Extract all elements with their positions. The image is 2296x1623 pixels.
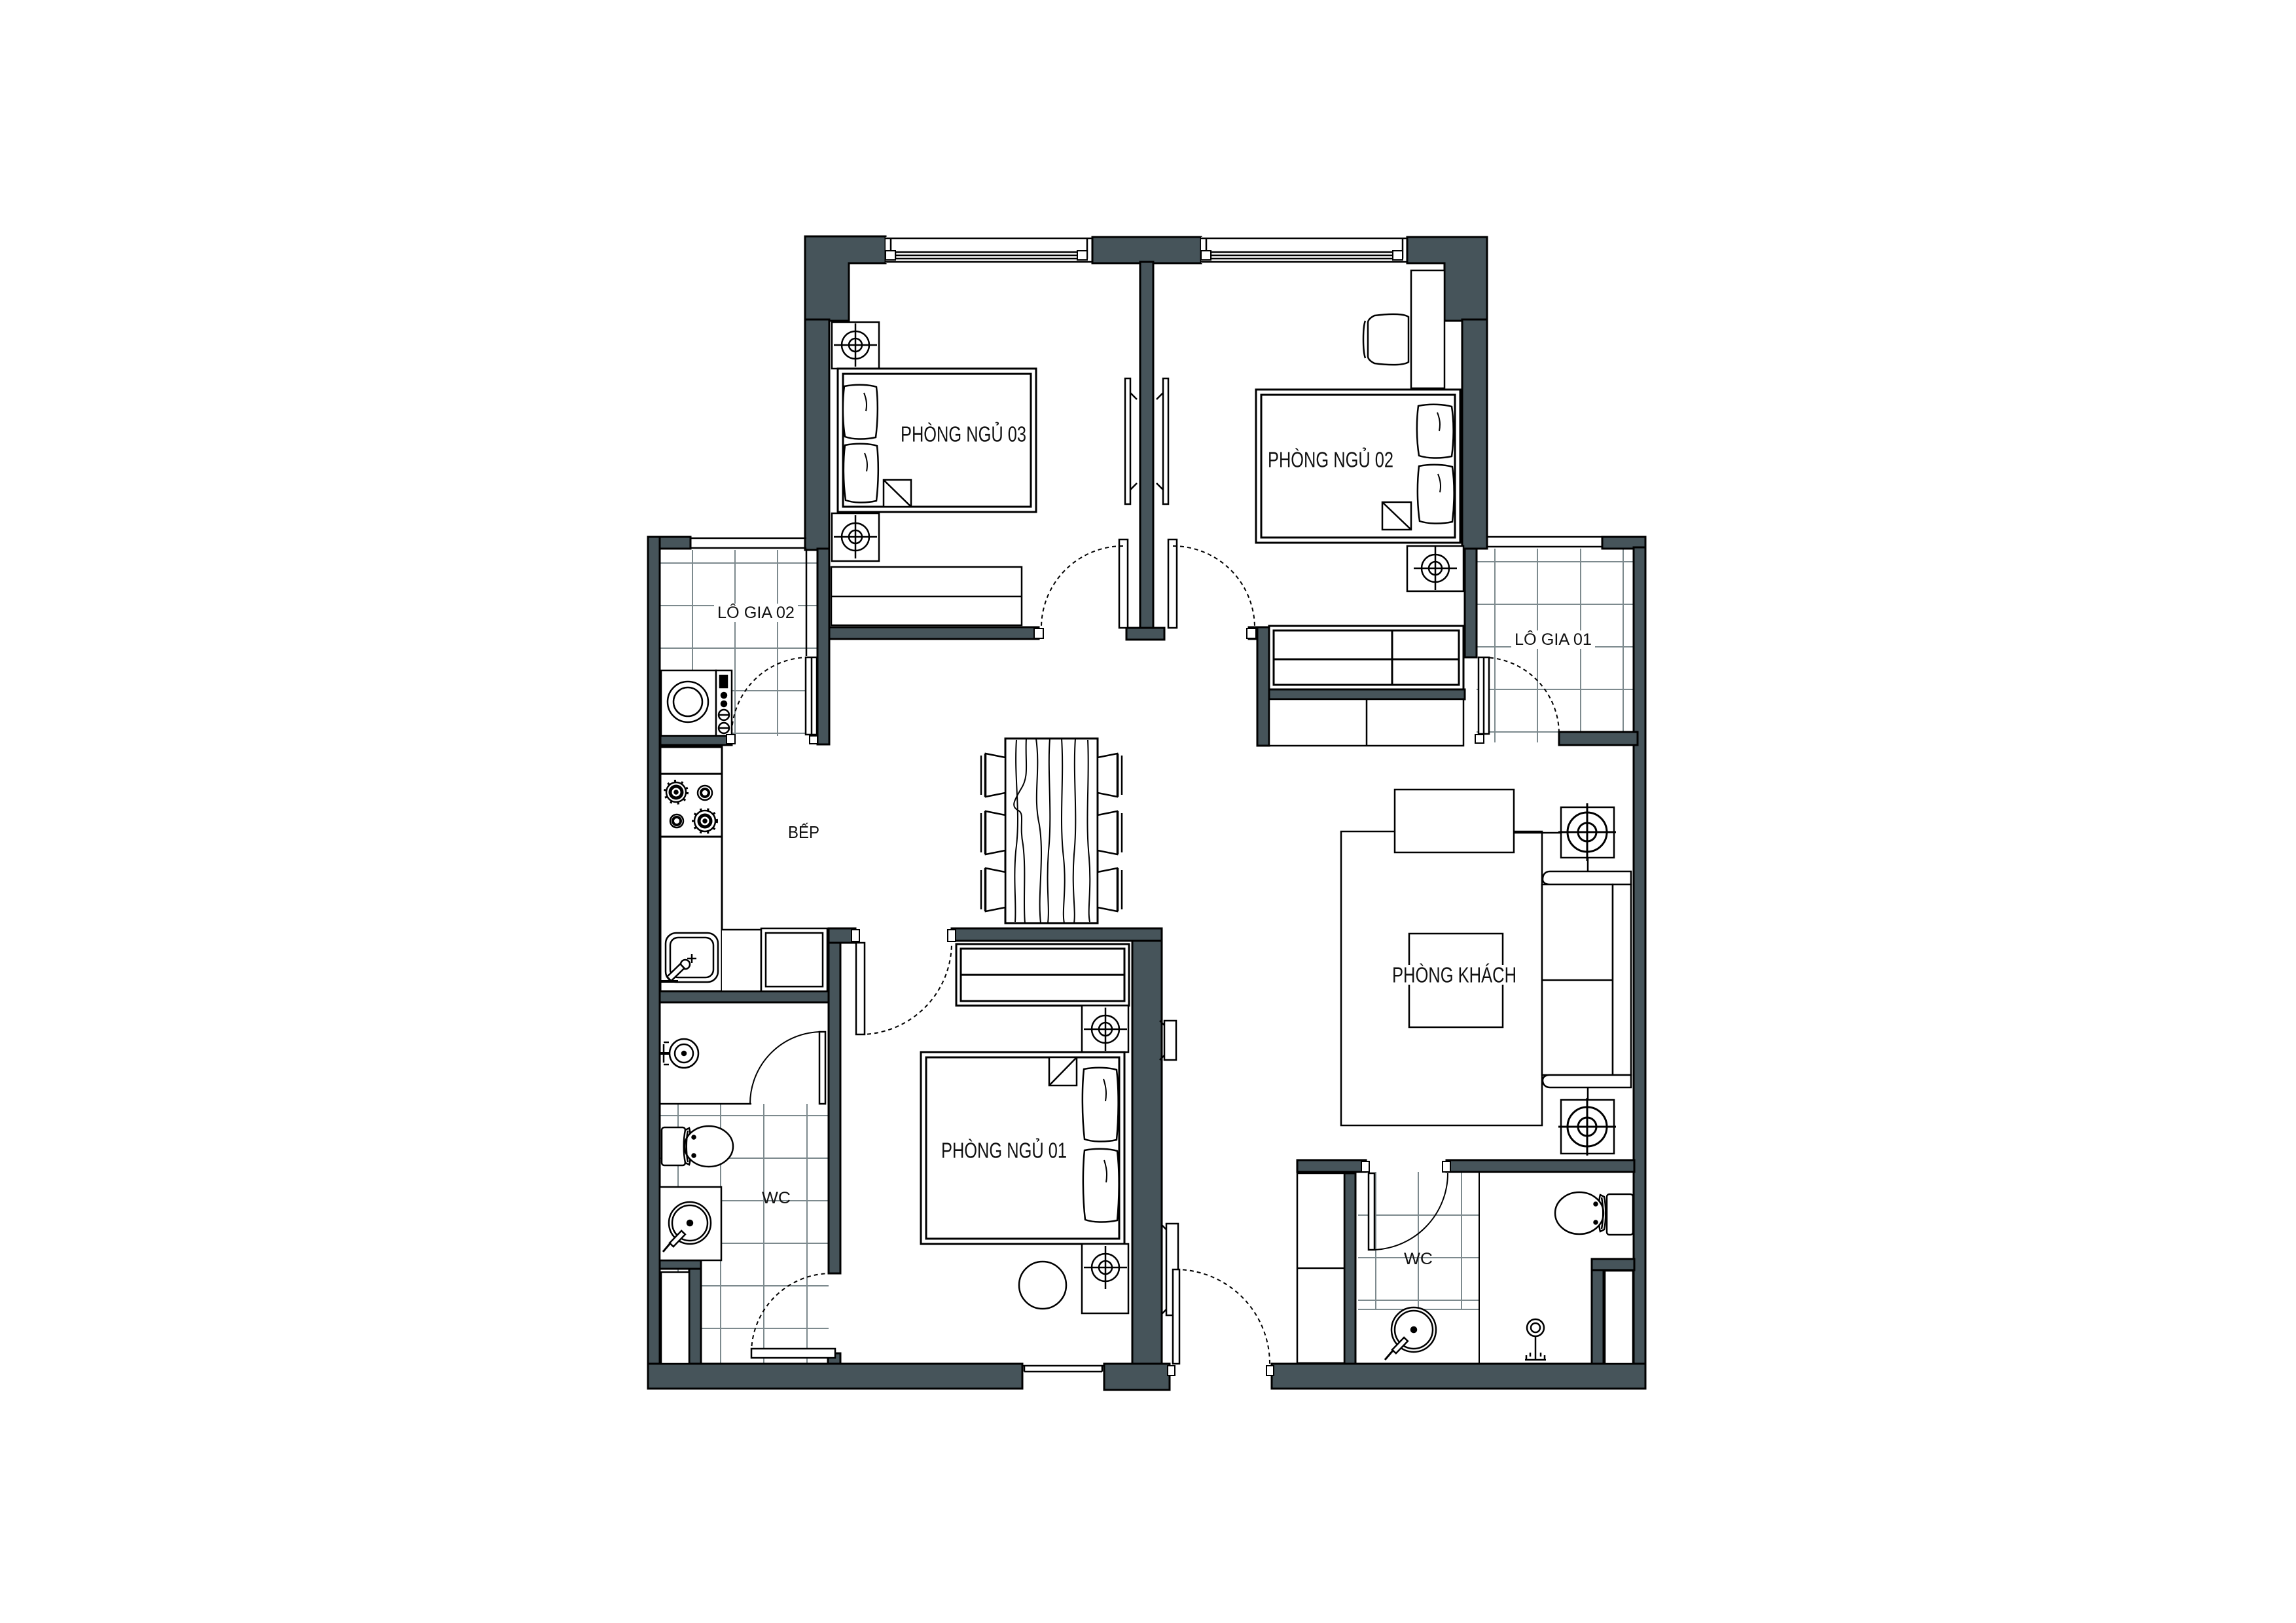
svg-text:PHÒNG KHÁCH: PHÒNG KHÁCH: [1392, 963, 1516, 987]
svg-text:PHÒNG NGỦ 02: PHÒNG NGỦ 02: [1268, 448, 1393, 472]
svg-text:WC: WC: [762, 1189, 791, 1207]
svg-text:PHÒNG NGỦ 01: PHÒNG NGỦ 01: [941, 1139, 1067, 1163]
svg-text:LÔ GIA 02: LÔ GIA 02: [717, 603, 795, 622]
svg-text:PHÒNG NGỦ 03: PHÒNG NGỦ 03: [901, 422, 1026, 447]
svg-text:LÔ GIA 01: LÔ GIA 01: [1515, 630, 1592, 649]
svg-text:WC: WC: [1404, 1250, 1433, 1268]
svg-text:BẾP: BẾP: [788, 822, 819, 842]
